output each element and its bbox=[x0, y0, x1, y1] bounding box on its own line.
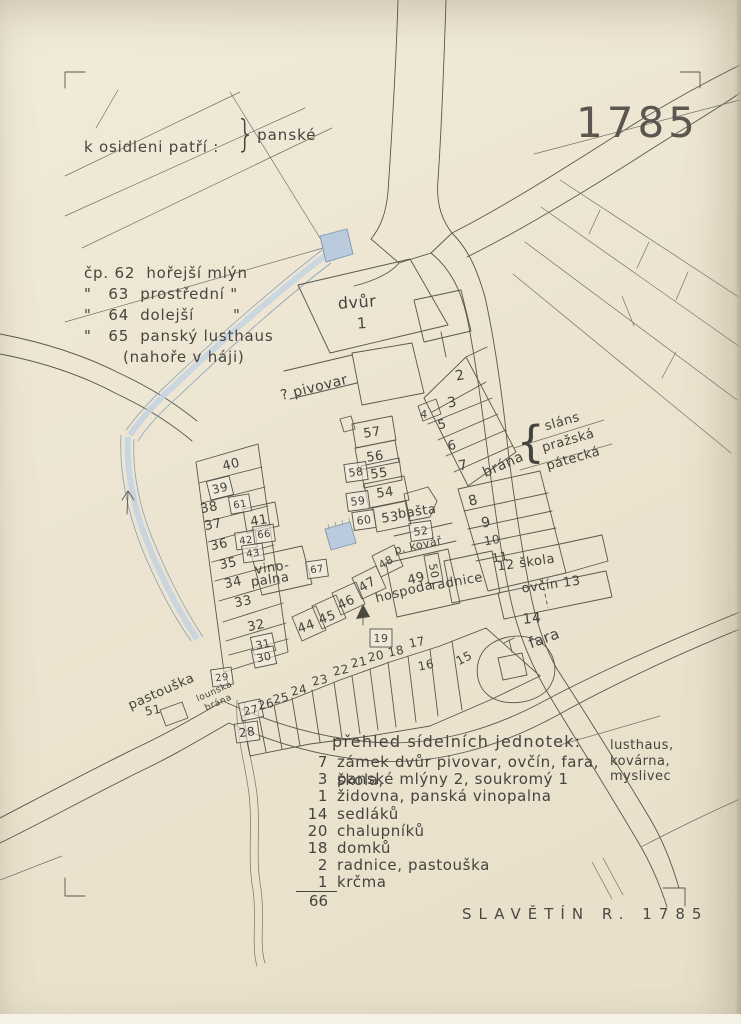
svg-text:? pivovar: ? pivovar bbox=[279, 372, 349, 404]
map-label-n36: 36 bbox=[209, 536, 229, 554]
legend-row: 14 sedláků bbox=[296, 805, 636, 822]
svg-text:24: 24 bbox=[290, 682, 309, 699]
map-label-n48: 48 bbox=[376, 553, 395, 572]
map-label-n18: 18 bbox=[387, 643, 406, 660]
legend-row: 7 zámek dvůr pivovar, ovčín, fara, škola… bbox=[296, 753, 636, 770]
scan-edge-bottom bbox=[0, 1014, 741, 1024]
church-building bbox=[325, 518, 356, 550]
legend: přehled sídelních jednotek: 7 zámek dvůr… bbox=[296, 732, 636, 910]
legend-text: chalupníků bbox=[337, 822, 425, 839]
stream-west bbox=[121, 435, 203, 641]
map-label-dvur-1: 1 bbox=[356, 314, 367, 333]
svg-text:2: 2 bbox=[454, 367, 467, 385]
legend-count: 3 bbox=[296, 770, 337, 787]
svg-text:19: 19 bbox=[374, 632, 389, 645]
svg-text:37: 37 bbox=[203, 516, 223, 534]
svg-text:9: 9 bbox=[480, 514, 493, 532]
legend-side-note: lusthaus, bbox=[610, 738, 674, 754]
map-label-n45: 45 bbox=[317, 608, 339, 628]
settlement-note-lines: čp. 62 hořejší mlýn" 63 prostřední "" 64… bbox=[84, 200, 273, 368]
svg-text:22: 22 bbox=[332, 662, 351, 679]
map-label-n57: 57 bbox=[362, 424, 381, 441]
svg-text:55: 55 bbox=[369, 465, 388, 482]
svg-text:17: 17 bbox=[408, 634, 427, 651]
panske-brace-note: } panské bbox=[236, 117, 317, 152]
svg-text:25: 25 bbox=[272, 690, 291, 707]
svg-text:34: 34 bbox=[223, 574, 243, 592]
map-label-n14: 14 bbox=[522, 610, 542, 628]
svg-text:54: 54 bbox=[375, 484, 394, 501]
svg-text:6: 6 bbox=[446, 438, 458, 454]
brace-icon: } bbox=[236, 113, 255, 157]
svg-text:58: 58 bbox=[348, 465, 365, 480]
map-label-n44: 44 bbox=[296, 617, 318, 637]
map-label-n54: 54 bbox=[375, 484, 394, 501]
svg-text:48: 48 bbox=[376, 553, 395, 572]
map-label-n9: 9 bbox=[480, 514, 493, 532]
map-label-n7: 7 bbox=[457, 457, 470, 475]
plot-strips-west bbox=[196, 444, 288, 672]
settlement-note-line: " 64 dolejší " bbox=[84, 305, 273, 326]
legend-row: 20 chalupníků bbox=[296, 822, 636, 839]
map-label-n17: 17 bbox=[408, 634, 427, 651]
map-label-n34: 34 bbox=[223, 574, 243, 592]
svg-text:3: 3 bbox=[446, 394, 459, 412]
legend-row: 18 domků bbox=[296, 839, 636, 856]
map-label-n28: 28 bbox=[234, 721, 260, 743]
map-label-n66: 66 bbox=[253, 524, 276, 544]
map-label-fara: fara bbox=[526, 624, 562, 652]
svg-text:61: 61 bbox=[232, 498, 247, 511]
settlement-note-line: " 63 prostřední " bbox=[84, 284, 273, 305]
svg-text:7: 7 bbox=[457, 457, 470, 475]
legend-side-note: kovárna, bbox=[610, 754, 674, 770]
map-label-n23: 23 bbox=[311, 672, 330, 689]
map-label-n59: 59 bbox=[346, 491, 370, 512]
legend-count: 1 bbox=[296, 787, 337, 804]
road-south-west bbox=[0, 701, 229, 880]
svg-text:15: 15 bbox=[454, 648, 475, 668]
map-label-n43: 43 bbox=[242, 543, 265, 563]
svg-text:57: 57 bbox=[362, 424, 381, 441]
svg-text:1: 1 bbox=[356, 314, 367, 333]
legend-total: 66 bbox=[296, 891, 337, 910]
map-label-n2: 2 bbox=[454, 367, 467, 385]
legend-text: panské mlýny 2, soukromý 1 bbox=[337, 770, 569, 787]
svg-text:14: 14 bbox=[522, 610, 542, 628]
map-label-ovcin-13: ovčín 13 bbox=[521, 573, 582, 596]
map-label-pivovar: ? pivovar bbox=[279, 372, 349, 404]
svg-text:20: 20 bbox=[367, 648, 386, 665]
svg-text:38: 38 bbox=[199, 499, 219, 517]
map-label-n33: 33 bbox=[233, 593, 253, 611]
map-label-n25: 25 bbox=[272, 690, 291, 707]
svg-text:44: 44 bbox=[296, 617, 318, 637]
map-label-n67: 67 bbox=[306, 559, 329, 579]
settlement-note-line: " 65 panský lusthaus bbox=[84, 326, 273, 347]
legend-text: zámek dvůr pivovar, ovčín, fara, škola, bbox=[337, 753, 636, 770]
map-label-n20: 20 bbox=[367, 648, 386, 665]
svg-text:59: 59 bbox=[350, 494, 367, 509]
legend-text: krčma bbox=[337, 873, 387, 890]
map-label-n35: 35 bbox=[218, 555, 238, 573]
legend-count: 1 bbox=[296, 873, 337, 890]
map-label-dvur: dvůr bbox=[337, 291, 377, 313]
legend-side-notes: lusthaus,kovárna,myslivec bbox=[610, 738, 674, 785]
map-label-n5: 5 bbox=[436, 417, 448, 433]
svg-text:60: 60 bbox=[356, 513, 373, 528]
map-label-n4: 4 bbox=[420, 408, 428, 421]
svg-text:67: 67 bbox=[310, 564, 325, 577]
svg-text:fara: fara bbox=[526, 624, 562, 652]
map-label-n22: 22 bbox=[332, 662, 351, 679]
legend-text: radnice, pastouška bbox=[337, 856, 490, 873]
legend-row: 2 radnice, pastouška bbox=[296, 856, 636, 873]
pastouska-building bbox=[160, 702, 188, 726]
map-label-n58: 58 bbox=[344, 462, 368, 483]
legend-count: 20 bbox=[296, 822, 337, 839]
map-label-n55: 55 bbox=[369, 465, 388, 482]
svg-text:40: 40 bbox=[221, 456, 242, 475]
map-label-n32: 32 bbox=[246, 617, 266, 635]
map-title: SLAVĚTÍN R. 1785 bbox=[462, 905, 708, 923]
svg-text:4: 4 bbox=[420, 408, 428, 421]
svg-text:28: 28 bbox=[238, 724, 256, 740]
panske-label: panské bbox=[257, 126, 316, 144]
map-label-n10: 10 bbox=[483, 532, 501, 549]
map-label-n51: 51 bbox=[144, 702, 163, 719]
svg-text:43: 43 bbox=[246, 548, 261, 561]
svg-text:21: 21 bbox=[350, 654, 369, 671]
legend-header: přehled sídelních jednotek: bbox=[332, 732, 636, 751]
legend-count: 14 bbox=[296, 805, 337, 822]
map-label-n19: 19 bbox=[370, 629, 392, 647]
map-label-n6: 6 bbox=[446, 438, 458, 454]
map-label-basta: bašta bbox=[397, 502, 437, 522]
map-label-n61: 61 bbox=[228, 494, 251, 514]
svg-text:35: 35 bbox=[218, 555, 238, 573]
map-label-n30: 30 bbox=[251, 646, 276, 668]
map-label-n38: 38 bbox=[199, 499, 219, 517]
legend-count: 18 bbox=[296, 839, 337, 856]
map-label-n56: 56 bbox=[365, 448, 384, 465]
svg-text:10: 10 bbox=[483, 532, 501, 549]
map-label-n3: 3 bbox=[446, 394, 459, 412]
svg-text:dvůr: dvůr bbox=[337, 291, 377, 313]
legend-row: 3 panské mlýny 2, soukromý 1 bbox=[296, 770, 636, 787]
scan-edge-shadow bbox=[735, 0, 741, 1024]
map-label-n15: 15 bbox=[454, 648, 475, 668]
svg-text:32: 32 bbox=[246, 617, 266, 635]
legend-count: 7 bbox=[296, 753, 337, 770]
legend-count: 2 bbox=[296, 856, 337, 873]
legend-text: domků bbox=[337, 839, 391, 856]
svg-text:23: 23 bbox=[311, 672, 330, 689]
svg-text:pastouška: pastouška bbox=[126, 671, 197, 714]
scanned-map-page: dvůr1? pivovar234567brána{slánspražskápá… bbox=[0, 0, 741, 1024]
legend-row: 1 krčma bbox=[296, 873, 636, 890]
map-label-n24: 24 bbox=[290, 682, 309, 699]
svg-text:51: 51 bbox=[144, 702, 163, 719]
settlement-note-line: čp. 62 hořejší mlýn bbox=[84, 263, 273, 284]
year-stamp: 1785 bbox=[576, 98, 699, 147]
svg-text:33: 33 bbox=[233, 593, 253, 611]
map-label-n60: 60 bbox=[352, 510, 376, 531]
svg-text:bašta: bašta bbox=[397, 502, 437, 522]
svg-text:66: 66 bbox=[257, 529, 272, 542]
map-label-n8: 8 bbox=[467, 492, 480, 510]
legend-side-note: myslivec bbox=[610, 769, 674, 785]
legend-text: sedláků bbox=[337, 805, 399, 822]
settlement-note-line: (nahoře v háji) bbox=[84, 347, 273, 368]
svg-text:56: 56 bbox=[365, 448, 384, 465]
map-label-pastouska: pastouška bbox=[126, 671, 197, 714]
svg-text:45: 45 bbox=[317, 608, 339, 628]
legend-rows: 7 zámek dvůr pivovar, ovčín, fara, škola… bbox=[296, 753, 636, 891]
road-north-east bbox=[452, 65, 740, 257]
svg-text:36: 36 bbox=[209, 536, 229, 554]
pond bbox=[320, 229, 353, 262]
map-label-n37: 37 bbox=[203, 516, 223, 534]
svg-text:8: 8 bbox=[467, 492, 480, 510]
svg-text:18: 18 bbox=[387, 643, 406, 660]
svg-text:ovčín 13: ovčín 13 bbox=[521, 573, 582, 596]
legend-row: 1 židovna, panská vinopalna bbox=[296, 787, 636, 804]
map-label-n21: 21 bbox=[350, 654, 369, 671]
tree-symbol-icon bbox=[356, 604, 370, 619]
svg-text:5: 5 bbox=[436, 417, 448, 433]
legend-text: židovna, panská vinopalna bbox=[337, 787, 552, 804]
map-label-n40: 40 bbox=[221, 456, 242, 475]
